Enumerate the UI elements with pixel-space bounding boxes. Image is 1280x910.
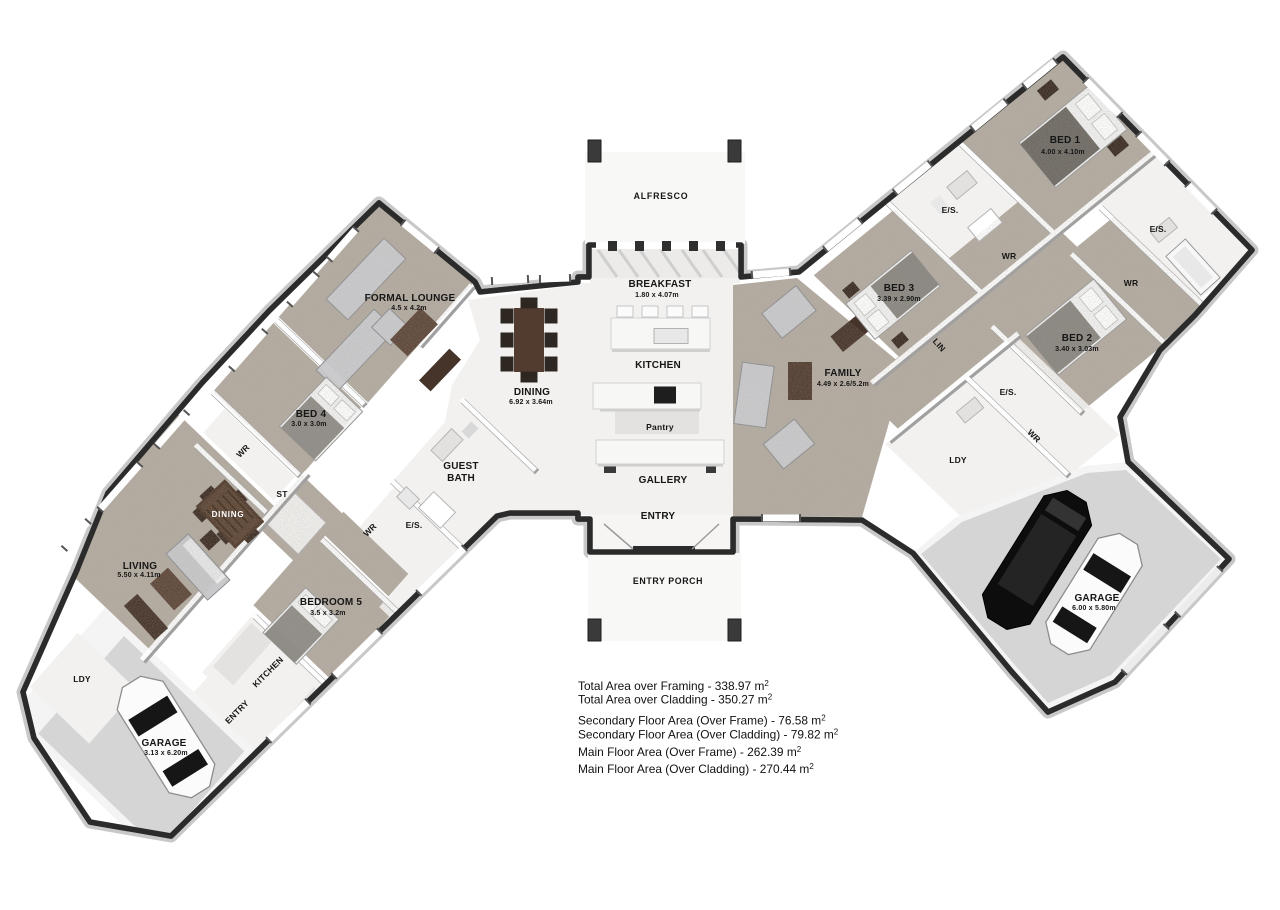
svg-text:FORMAL LOUNGE: FORMAL LOUNGE xyxy=(365,293,456,304)
svg-text:Main Floor Area (Over Frame) -: Main Floor Area (Over Frame) - 262.39 m2 xyxy=(578,745,802,759)
svg-text:ST: ST xyxy=(276,489,288,499)
svg-text:3.0 x 3.0m: 3.0 x 3.0m xyxy=(291,421,326,428)
svg-text:4.5 x 4.2m: 4.5 x 4.2m xyxy=(391,305,426,312)
svg-text:WR: WR xyxy=(1002,251,1017,261)
svg-text:3.13 x 6.20m: 3.13 x 6.20m xyxy=(144,750,188,757)
svg-text:Secondary Floor Area (Over Fra: Secondary Floor Area (Over Frame) - 76.5… xyxy=(578,714,826,728)
svg-text:3.40 x 3.03m: 3.40 x 3.03m xyxy=(1055,346,1099,353)
svg-text:Total Area over Framing - 338.: Total Area over Framing - 338.97 m2 xyxy=(578,679,769,693)
svg-text:LDY: LDY xyxy=(73,674,91,684)
svg-text:ALFRESCO: ALFRESCO xyxy=(634,191,689,201)
svg-text:FAMILY: FAMILY xyxy=(825,368,862,379)
svg-text:BREAKFAST: BREAKFAST xyxy=(629,279,692,290)
svg-text:E/S.: E/S. xyxy=(406,520,423,530)
svg-text:6.92 x 3.64m: 6.92 x 3.64m xyxy=(509,399,553,406)
svg-text:KITCHEN: KITCHEN xyxy=(635,360,681,371)
svg-text:GARAGE: GARAGE xyxy=(1074,593,1119,604)
svg-text:Main Floor Area (Over Cladding: Main Floor Area (Over Cladding) - 270.44… xyxy=(578,762,814,776)
svg-text:LIVING: LIVING xyxy=(123,561,158,572)
svg-text:DINING: DINING xyxy=(514,387,550,398)
svg-text:BEDROOM 5: BEDROOM 5 xyxy=(300,597,363,608)
svg-text:4.49 x 2.6/5.2m: 4.49 x 2.6/5.2m xyxy=(817,381,869,388)
svg-text:BED 2: BED 2 xyxy=(1062,333,1093,344)
svg-text:WR: WR xyxy=(1124,278,1139,288)
svg-text:3.5 x 3.2m: 3.5 x 3.2m xyxy=(310,610,345,617)
svg-text:Total Area over Cladding - 350: Total Area over Cladding - 350.27 m2 xyxy=(578,693,773,707)
svg-text:ENTRY: ENTRY xyxy=(641,511,676,522)
svg-text:BED 3: BED 3 xyxy=(884,283,915,294)
svg-text:BED 1: BED 1 xyxy=(1050,135,1081,146)
svg-text:E/S.: E/S. xyxy=(1150,224,1167,234)
svg-text:E/S.: E/S. xyxy=(1000,387,1017,397)
svg-text:BED 4: BED 4 xyxy=(296,409,327,420)
svg-text:4.00 x 4.10m: 4.00 x 4.10m xyxy=(1041,149,1085,156)
svg-text:E/S.: E/S. xyxy=(942,205,959,215)
svg-text:DINING: DINING xyxy=(212,510,245,519)
svg-text:GALLERY: GALLERY xyxy=(639,475,688,486)
svg-text:6.00 x 5.80m: 6.00 x 5.80m xyxy=(1072,605,1116,612)
svg-text:GUEST: GUEST xyxy=(443,461,478,472)
svg-text:ENTRY PORCH: ENTRY PORCH xyxy=(633,576,703,586)
svg-text:5.50 x 4.11m: 5.50 x 4.11m xyxy=(117,572,160,579)
svg-text:GARAGE: GARAGE xyxy=(141,738,186,749)
svg-text:BATH: BATH xyxy=(447,473,475,484)
svg-text:1.80 x 4.07m: 1.80 x 4.07m xyxy=(635,292,679,299)
svg-text:Pantry: Pantry xyxy=(646,422,674,432)
svg-text:LDY: LDY xyxy=(949,455,967,465)
svg-text:3.39 x 2.90m: 3.39 x 2.90m xyxy=(877,296,921,303)
svg-text:Secondary Floor Area (Over Cla: Secondary Floor Area (Over Cladding) - 7… xyxy=(578,728,839,742)
